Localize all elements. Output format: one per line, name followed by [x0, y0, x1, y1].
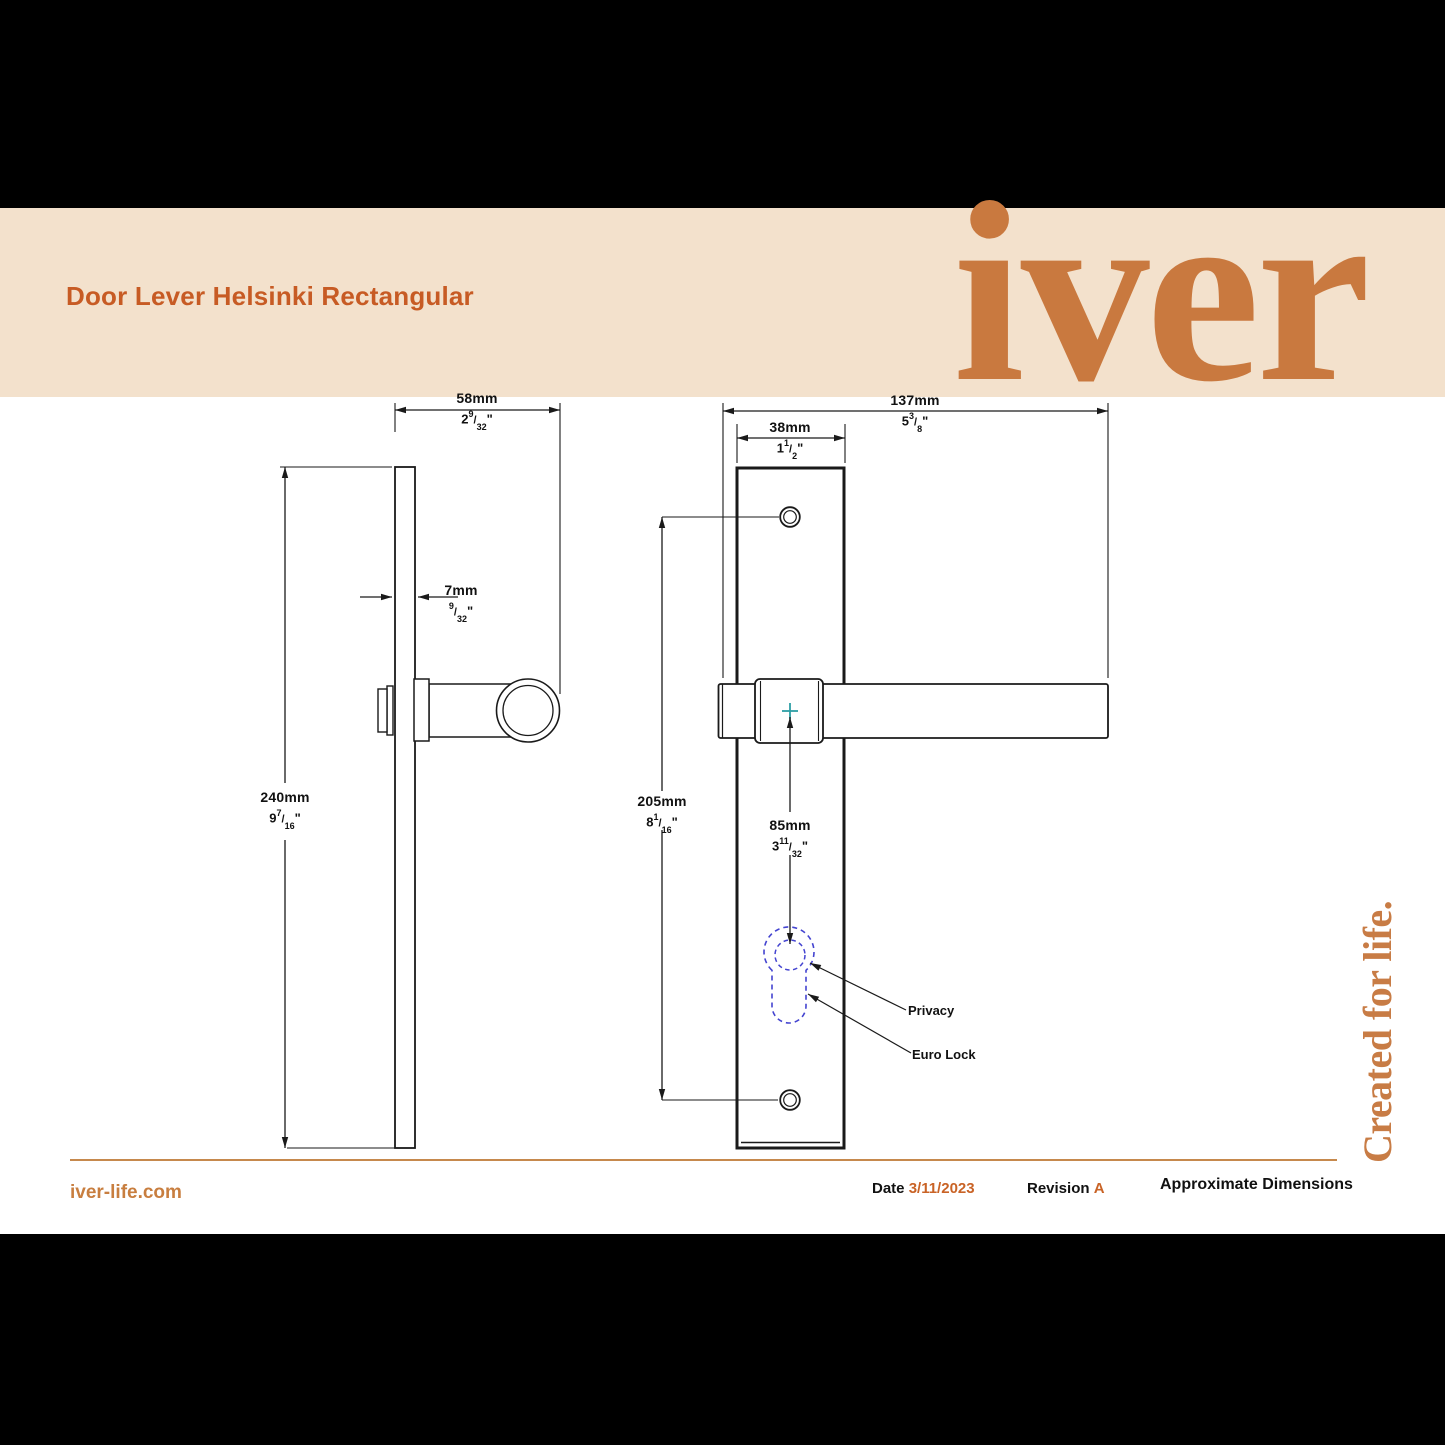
- revision-field: Revision A: [1027, 1180, 1105, 1197]
- date-label: Date: [872, 1180, 905, 1197]
- side-lever-collar: [414, 679, 429, 741]
- front-view: [662, 403, 1108, 1148]
- date-value: 3/11/2023: [909, 1180, 975, 1197]
- approximate-dimensions-note: Approximate Dimensions: [1160, 1176, 1353, 1194]
- tagline-created-for-life: Created for life.: [1354, 848, 1408, 1163]
- dim-inch-value: 11/2": [730, 436, 850, 462]
- dim-mm-value: 137mm: [855, 392, 975, 409]
- spec-sheet-page: Door Lever Helsinki Rectangular iver: [0, 0, 1445, 1445]
- dim-mm-value: 240mm: [225, 789, 345, 806]
- side-plate: [395, 467, 415, 1148]
- dim-mm-value: 7mm: [425, 582, 497, 599]
- dim-inch-value: 53/8": [855, 409, 975, 435]
- dim-label-58mm: 58mm 29/32": [417, 390, 537, 433]
- side-view: [280, 403, 560, 1148]
- dim-label-205mm: 205mm 81/16": [602, 793, 722, 836]
- dim-label-137mm: 137mm 53/8": [855, 392, 975, 435]
- date-field: Date 3/11/2023: [872, 1180, 975, 1197]
- dim-inch-value: 81/16": [602, 810, 722, 836]
- side-spindle-end: [378, 689, 387, 732]
- euro-lock-label: Euro Lock: [912, 1047, 976, 1062]
- dim-label-240mm: 240mm 97/16": [225, 789, 345, 832]
- side-spindle-collar: [387, 686, 393, 735]
- dim-label-7mm: 7mm 9/32": [425, 582, 497, 625]
- footer-rule: [70, 1159, 1337, 1161]
- dim-inch-value: 311/32": [730, 834, 850, 860]
- dim-inch-value: 97/16": [225, 806, 345, 832]
- dim-mm-value: 38mm: [730, 419, 850, 436]
- dim-mm-value: 85mm: [730, 817, 850, 834]
- privacy-label: Privacy: [908, 1003, 954, 1018]
- dim-mm-value: 205mm: [602, 793, 722, 810]
- revision-label: Revision: [1027, 1180, 1090, 1197]
- technical-drawing: [0, 0, 1445, 1445]
- website-link[interactable]: iver-life.com: [70, 1182, 182, 1204]
- dim-label-85mm: 85mm 311/32": [730, 817, 850, 860]
- revision-value: A: [1094, 1180, 1105, 1197]
- side-lever-grip-outer: [497, 679, 560, 742]
- dim-inch-value: 29/32": [417, 407, 537, 433]
- dim-label-38mm: 38mm 11/2": [730, 419, 850, 462]
- dim-inch-value: 9/32": [425, 599, 497, 625]
- dim-mm-value: 58mm: [417, 390, 537, 407]
